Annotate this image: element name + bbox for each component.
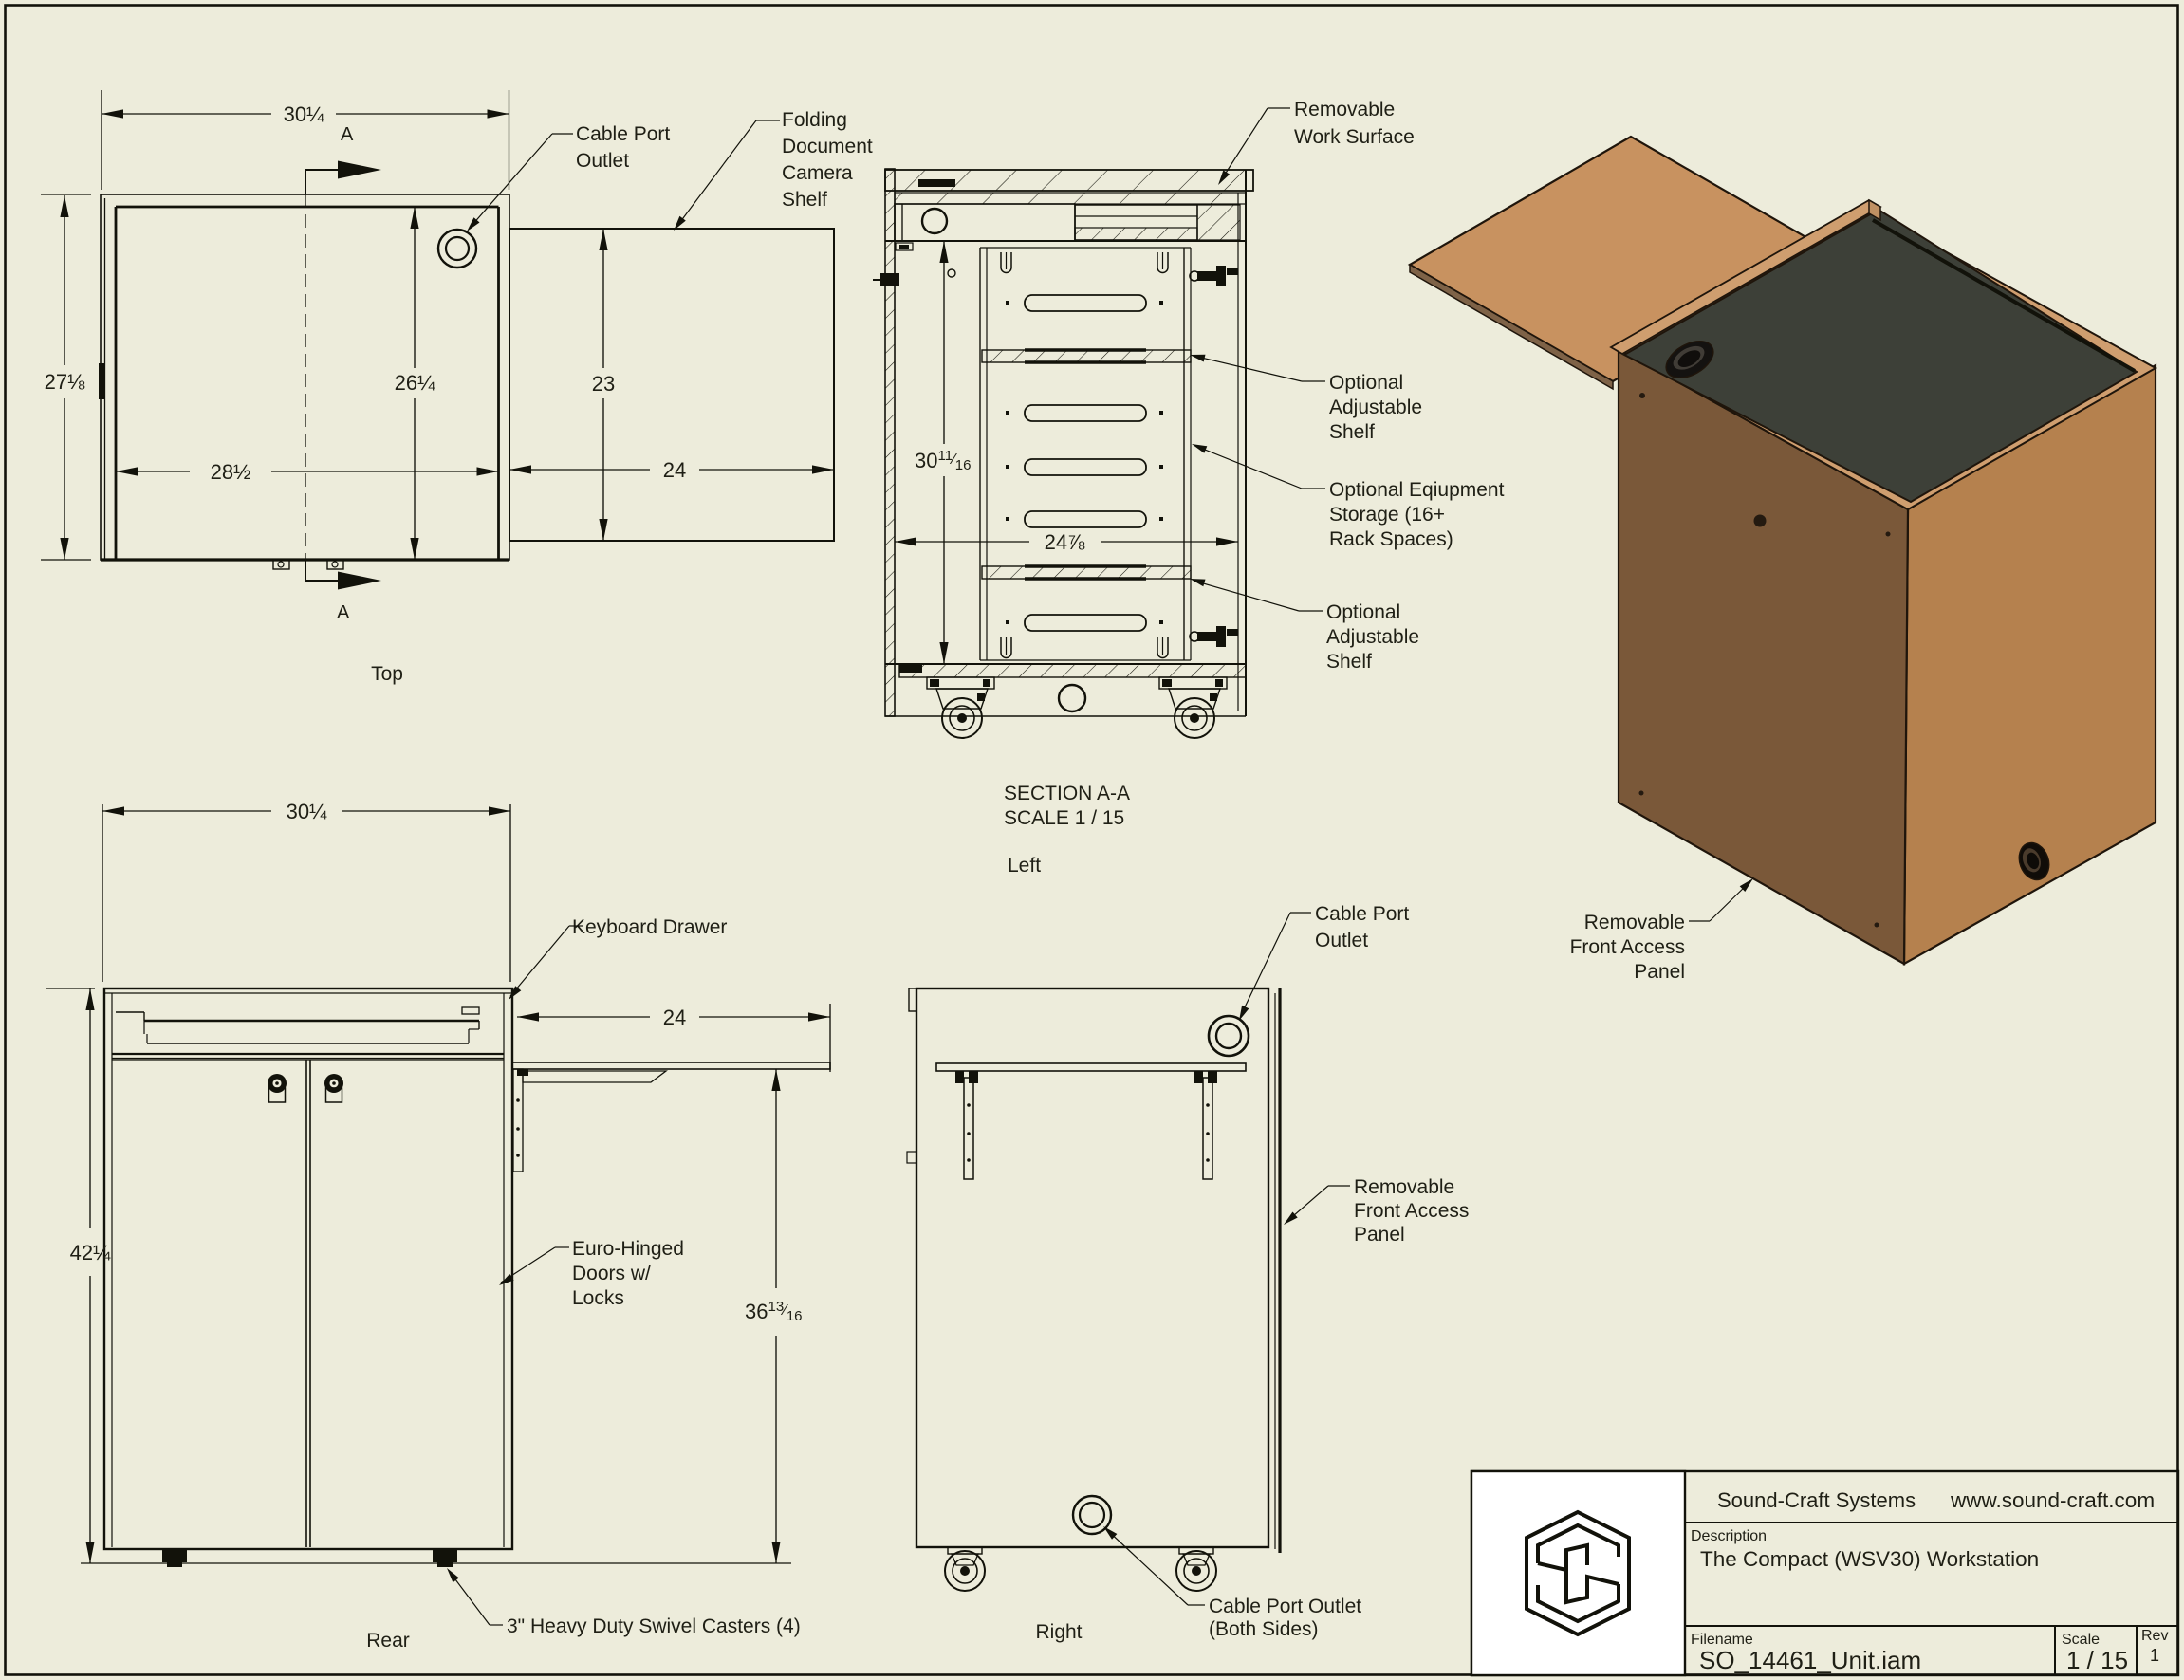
svg-text:SO_14461_Unit.iam: SO_14461_Unit.iam <box>1699 1646 1921 1674</box>
svg-text:Rev: Rev <box>2141 1628 2168 1644</box>
svg-text:Folding: Folding <box>782 109 847 131</box>
svg-text:Removable: Removable <box>1354 1176 1454 1198</box>
svg-text:A: A <box>337 602 350 623</box>
svg-text:Locks: Locks <box>572 1287 624 1309</box>
svg-text:Optional: Optional <box>1329 372 1403 394</box>
svg-text:42¼: 42¼ <box>70 1241 111 1265</box>
svg-text:Removable: Removable <box>1584 912 1685 933</box>
svg-text:SECTION A-A: SECTION A-A <box>1004 783 1130 804</box>
svg-text:26¼: 26¼ <box>395 371 435 395</box>
svg-text:Shelf: Shelf <box>1326 651 1372 673</box>
svg-text:Adjustable: Adjustable <box>1326 626 1419 648</box>
svg-text:24: 24 <box>663 1006 686 1029</box>
svg-text:Rack Spaces): Rack Spaces) <box>1329 528 1453 550</box>
svg-text:Camera: Camera <box>782 162 853 184</box>
svg-text:Front Access: Front Access <box>1354 1200 1469 1222</box>
svg-text:SCALE 1 / 15: SCALE 1 / 15 <box>1004 807 1124 829</box>
svg-text:The Compact (WSV30) Workstatio: The Compact (WSV30) Workstation <box>1700 1547 2039 1571</box>
svg-text:Rear: Rear <box>366 1630 410 1652</box>
svg-text:(Both Sides): (Both Sides) <box>1209 1618 1319 1640</box>
svg-text:Right: Right <box>1035 1621 1082 1643</box>
svg-text:27⅛: 27⅛ <box>45 370 85 394</box>
svg-text:Shelf: Shelf <box>782 189 827 211</box>
svg-text:1: 1 <box>2150 1646 2159 1665</box>
svg-text:Cable Port: Cable Port <box>1315 903 1409 925</box>
svg-text:24: 24 <box>663 458 686 482</box>
svg-text:Left: Left <box>1008 855 1041 877</box>
svg-text:Document: Document <box>782 136 873 157</box>
svg-text:Sound-Craft Systems: Sound-Craft Systems <box>1717 1488 1916 1512</box>
svg-text:Optional Eqiupment: Optional Eqiupment <box>1329 479 1505 501</box>
svg-text:23: 23 <box>592 372 615 396</box>
svg-text:Front Access: Front Access <box>1570 936 1685 958</box>
svg-text:24⅞: 24⅞ <box>1045 530 1085 554</box>
svg-text:Adjustable: Adjustable <box>1329 397 1422 418</box>
svg-text:Work Surface: Work Surface <box>1294 126 1415 148</box>
svg-text:Removable: Removable <box>1294 99 1395 120</box>
svg-text:Panel: Panel <box>1354 1224 1405 1246</box>
svg-text:www.sound-craft.com: www.sound-craft.com <box>1950 1488 2155 1512</box>
svg-text:Cable Port: Cable Port <box>576 123 670 145</box>
svg-text:Top: Top <box>371 663 403 685</box>
svg-text:Outlet: Outlet <box>576 150 629 172</box>
svg-text:Euro-Hinged: Euro-Hinged <box>572 1238 684 1260</box>
svg-text:Cable Port Outlet: Cable Port Outlet <box>1209 1596 1361 1617</box>
svg-text:Keyboard Drawer: Keyboard Drawer <box>572 916 727 938</box>
svg-text:A: A <box>341 124 354 145</box>
svg-text:Storage (16+: Storage (16+ <box>1329 504 1445 526</box>
svg-text:30¼: 30¼ <box>287 800 327 823</box>
svg-text:Description: Description <box>1691 1528 1767 1544</box>
svg-text:1 / 15: 1 / 15 <box>2066 1646 2128 1674</box>
svg-text:28½: 28½ <box>211 460 251 484</box>
svg-text:Panel: Panel <box>1634 961 1685 983</box>
svg-text:30¼: 30¼ <box>284 102 324 126</box>
svg-text:Shelf: Shelf <box>1329 421 1375 443</box>
svg-text:Optional: Optional <box>1326 601 1400 623</box>
svg-text:3" Heavy Duty Swivel Casters (: 3" Heavy Duty Swivel Casters (4) <box>507 1615 801 1637</box>
svg-text:Outlet: Outlet <box>1315 930 1368 951</box>
svg-text:Doors w/: Doors w/ <box>572 1263 651 1284</box>
